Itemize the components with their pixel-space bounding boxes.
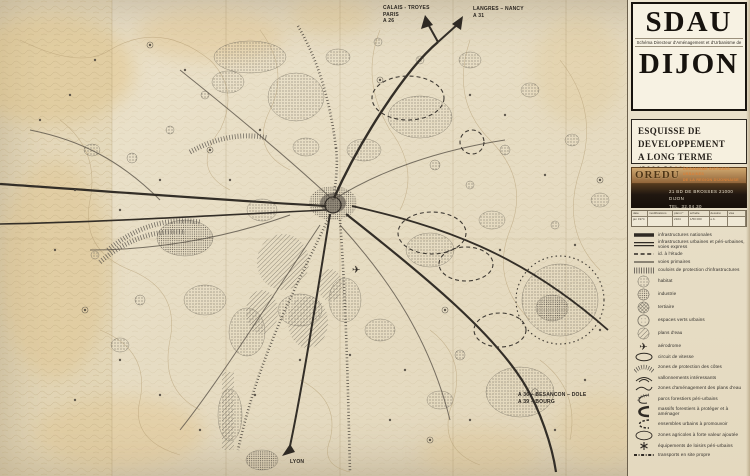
road-label-besancon-bourg: A 36 – BESANCON – DOLE A 39 – BOURG bbox=[518, 392, 586, 405]
legend-label: infrastructures nationales bbox=[658, 232, 712, 237]
road-label-line: A 36 – BESANCON – DOLE bbox=[518, 392, 586, 399]
periurban-forest-park-arc-icon bbox=[633, 393, 654, 405]
urban-ensemble-dashed-arc-icon bbox=[633, 418, 654, 430]
legend-item: couloirs de protection d'infrastructures bbox=[633, 266, 748, 275]
legend-label: zones de protection des côtes bbox=[658, 364, 722, 369]
legend-item: id. à l'étude bbox=[633, 250, 748, 258]
legend-label: habitat bbox=[658, 278, 673, 283]
table-cell: 2104 bbox=[673, 217, 689, 226]
table-cell bbox=[648, 217, 673, 226]
legend-item: plans d'eau bbox=[633, 327, 748, 340]
industry-stipple-circle-icon bbox=[633, 288, 654, 301]
table-cell bbox=[728, 217, 746, 226]
road-label-calais-troyes: CALAIS - TROYES PARIS A 26 bbox=[383, 5, 430, 25]
plan-subtitle: Schéma Directeur d'Aménagement et d'Urba… bbox=[635, 38, 743, 47]
legend-item: zones d'aménagement des plans d'eau bbox=[633, 383, 748, 393]
legend-label: voies primaires bbox=[658, 259, 690, 264]
water-development-arc-icon bbox=[633, 383, 654, 393]
national-infrastructure-line-icon bbox=[633, 231, 654, 239]
legend-item: infrastructures nationales bbox=[633, 231, 748, 239]
slope-protection-hachure-icon bbox=[633, 362, 654, 373]
road-label-line: LANGRES – NANCY bbox=[473, 6, 524, 13]
agency-name: ORGANISME D'ETUDES URBAINES DE LA REGION… bbox=[683, 167, 743, 183]
legend-item: industrie bbox=[633, 288, 748, 301]
legend-label: industrie bbox=[658, 291, 676, 296]
legend-item: habitat bbox=[633, 275, 748, 288]
legend-item: ensembles urbains à promouvoir bbox=[633, 418, 748, 430]
housing-stipple-circle-icon bbox=[633, 275, 654, 288]
legend-item: infrastructures urbaines et péri-urbaine… bbox=[633, 239, 748, 250]
map-graphic: ✈ CALAIS - TROYES PARIS A 26 LANGRES – N… bbox=[0, 0, 628, 476]
legend-item: tertiaire bbox=[633, 301, 748, 314]
legend-item: zones agricoles à forte valeur ajoutée bbox=[633, 430, 748, 441]
legend-label: couloirs de protection d'infrastructures bbox=[658, 267, 739, 272]
urban-infrastructure-line-icon bbox=[633, 240, 654, 248]
agency-address-band: 21 BD DE BROSSES 21000 DIJON TEL. 32.04.… bbox=[631, 184, 747, 208]
legend-label: massifs forestiers à protéger et à aména… bbox=[658, 406, 748, 417]
legend-label: zones agricoles à forte valeur ajoutée bbox=[658, 432, 738, 437]
drawing-title-table: date modifications plan n° échelle dessi… bbox=[631, 210, 747, 227]
road-label-line: A 39 – BOURG bbox=[518, 399, 586, 406]
airplane-icon: ✈ bbox=[633, 340, 654, 352]
svg-text:✈: ✈ bbox=[639, 342, 647, 352]
legend-item: équipements de loisirs péri-urbains bbox=[633, 441, 748, 451]
legend-item: massifs forestiers à protéger et à aména… bbox=[633, 405, 748, 418]
legend-item: transports en site propre bbox=[633, 451, 748, 459]
road-label-line: CALAIS - TROYES bbox=[383, 5, 430, 12]
map-legend: infrastructures nationalesinfrastructure… bbox=[633, 231, 748, 457]
road-label-langres-nancy: LANGRES – NANCY A 31 bbox=[473, 6, 524, 19]
legend-label: circuit de vitesse bbox=[658, 354, 694, 359]
tertiary-crosshatch-circle-icon bbox=[633, 301, 654, 314]
legend-label: infrastructures urbaines et péri-urbaine… bbox=[658, 239, 748, 250]
legend-label: transports en site propre bbox=[658, 452, 710, 457]
table-cell: 1/50 000 bbox=[689, 217, 710, 226]
sketch-title-line: DEVELOPPEMENT bbox=[638, 138, 746, 151]
plan-acronym: SDAU bbox=[633, 7, 745, 37]
airport-map-icon: ✈ bbox=[352, 265, 360, 276]
road-label-lyon: LYON bbox=[290, 459, 304, 466]
agricultural-zone-ellipse-icon bbox=[633, 430, 654, 441]
legend-label: aérodrome bbox=[658, 343, 681, 348]
transit-dashdot-line-icon bbox=[633, 451, 654, 459]
legend-label: id. à l'étude bbox=[658, 251, 683, 256]
protection-corridor-band-icon bbox=[633, 266, 654, 275]
road-label-line: LYON bbox=[290, 459, 304, 466]
table-cell: e.b. bbox=[710, 217, 728, 226]
legend-label: ensembles urbains à promouvoir bbox=[658, 421, 728, 426]
city-name: DIJON bbox=[633, 49, 745, 79]
green-space-circle-icon bbox=[633, 314, 654, 327]
agency-logo: OREDU bbox=[635, 169, 680, 181]
road-label-line: A 26 bbox=[383, 18, 430, 25]
legend-item: ✈aérodrome bbox=[633, 340, 748, 352]
water-plane-circle-icon bbox=[633, 327, 654, 340]
legend-label: parcs forestiers péri-urbains bbox=[658, 396, 718, 401]
planned-road-dashed-line-icon bbox=[633, 250, 654, 258]
legend-label: plans d'eau bbox=[658, 330, 682, 335]
title-legend-panel: SDAU Schéma Directeur d'Aménagement et d… bbox=[627, 0, 750, 476]
forest-massif-arc-icon bbox=[633, 405, 654, 418]
sketch-title-block: ESQUISSE DE DEVELOPPEMENT A LONG TERME (… bbox=[631, 119, 747, 164]
legend-item: voies primaires bbox=[633, 258, 748, 266]
legend-label: vallonnements intéressants bbox=[658, 375, 716, 380]
legend-label: équipements de loisirs péri-urbains bbox=[658, 443, 733, 448]
leisure-facility-asterisk-icon bbox=[633, 441, 654, 451]
legend-item: vallonnements intéressants bbox=[633, 373, 748, 383]
legend-label: zones d'aménagement des plans d'eau bbox=[658, 385, 741, 390]
rolling-hills-curves-icon bbox=[633, 373, 654, 383]
agency-band: OREDU ORGANISME D'ETUDES URBAINES DE LA … bbox=[631, 167, 747, 184]
sketch-title-line: ESQUISSE DE bbox=[638, 125, 746, 138]
scanned-map-page: ✈ CALAIS - TROYES PARIS A 26 LANGRES – N… bbox=[0, 0, 750, 476]
primary-road-line-icon bbox=[633, 258, 654, 266]
title-block: SDAU Schéma Directeur d'Aménagement et d… bbox=[631, 2, 747, 111]
legend-label: tertiaire bbox=[658, 304, 674, 309]
legend-item: circuit de vitesse bbox=[633, 352, 748, 362]
legend-label: espaces verts urbains bbox=[658, 317, 705, 322]
legend-item: espaces verts urbains bbox=[633, 314, 748, 327]
race-circuit-oval-icon bbox=[633, 352, 654, 362]
table-cell: jan 1974 bbox=[632, 217, 648, 226]
legend-item: parcs forestiers péri-urbains bbox=[633, 393, 748, 405]
agency-address: 21 BD DE BROSSES 21000 DIJON bbox=[669, 188, 747, 203]
legend-item: zones de protection des côtes bbox=[633, 362, 748, 373]
road-label-line: A 31 bbox=[473, 13, 524, 20]
